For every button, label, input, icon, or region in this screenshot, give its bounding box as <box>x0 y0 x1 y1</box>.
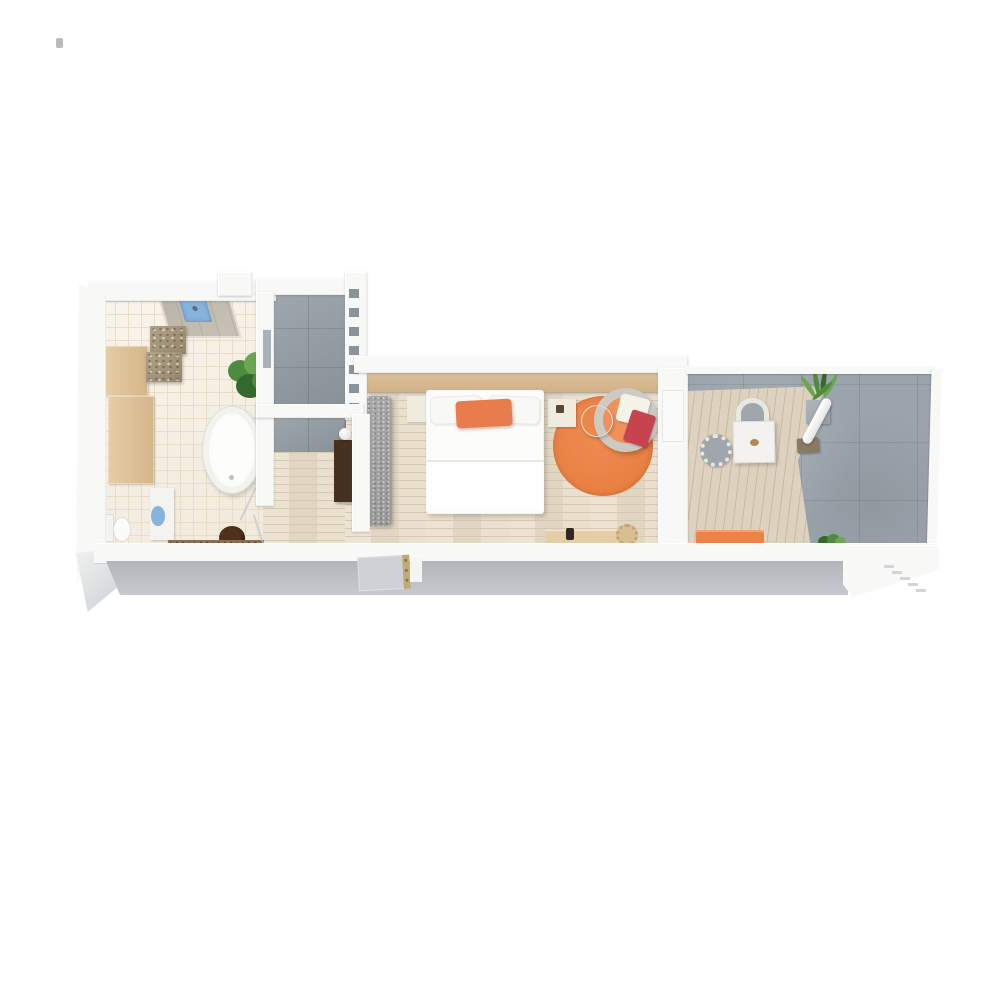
hinge <box>404 559 407 562</box>
balcony-top-parapet <box>686 366 934 374</box>
hinge <box>405 569 408 572</box>
perforated-partition-wall <box>345 272 367 420</box>
vestibule-left-wall <box>256 292 274 506</box>
balcony-door <box>662 390 684 442</box>
sphere-lamp <box>339 428 351 440</box>
oval-bathtub <box>202 406 262 494</box>
nightstand-right <box>548 399 576 427</box>
bedroom-partition-stub <box>352 414 370 532</box>
vestibule-mid-wall <box>256 404 364 418</box>
blue-washbasin <box>149 504 167 528</box>
stone-block-bench <box>146 352 182 382</box>
sideboard <box>108 396 154 484</box>
bottom-exterior-wall-top <box>94 543 936 563</box>
tub-drain <box>229 475 234 480</box>
floor-plan-render <box>0 0 1000 1000</box>
orange-accent-pillow <box>455 399 512 429</box>
bottom-exterior-wall-face <box>106 561 848 595</box>
window-slit <box>263 330 271 368</box>
parapet-notch <box>900 577 910 580</box>
storage-cabinet <box>104 346 148 396</box>
parapet-notch <box>884 565 894 568</box>
parapet-notch <box>892 571 902 574</box>
toilet-bowl <box>113 517 131 542</box>
dark-wardrobe <box>334 440 354 502</box>
round-wicker-chair <box>700 434 732 467</box>
desk-lamp <box>566 528 574 540</box>
entry-door <box>357 555 411 592</box>
outdoor-dining-table <box>733 421 776 464</box>
door-threshold <box>410 558 422 582</box>
nightstand-clock <box>556 405 564 413</box>
round-side-table <box>581 405 613 437</box>
bathroom-left-wall <box>76 284 106 584</box>
double-bed <box>426 390 544 514</box>
vestibule-floor <box>272 294 346 406</box>
table-decor <box>750 439 759 446</box>
wall-column <box>218 272 252 296</box>
balcony-partition-wall <box>658 368 688 548</box>
hinge <box>405 579 408 582</box>
perforation-holes <box>349 280 359 412</box>
parapet-notch <box>908 583 918 586</box>
parapet-notch <box>916 589 926 592</box>
stone-block-bench <box>150 326 186 354</box>
duvet <box>426 462 544 510</box>
tub-faucet <box>56 38 63 48</box>
bedroom-top-wall <box>354 356 688 373</box>
